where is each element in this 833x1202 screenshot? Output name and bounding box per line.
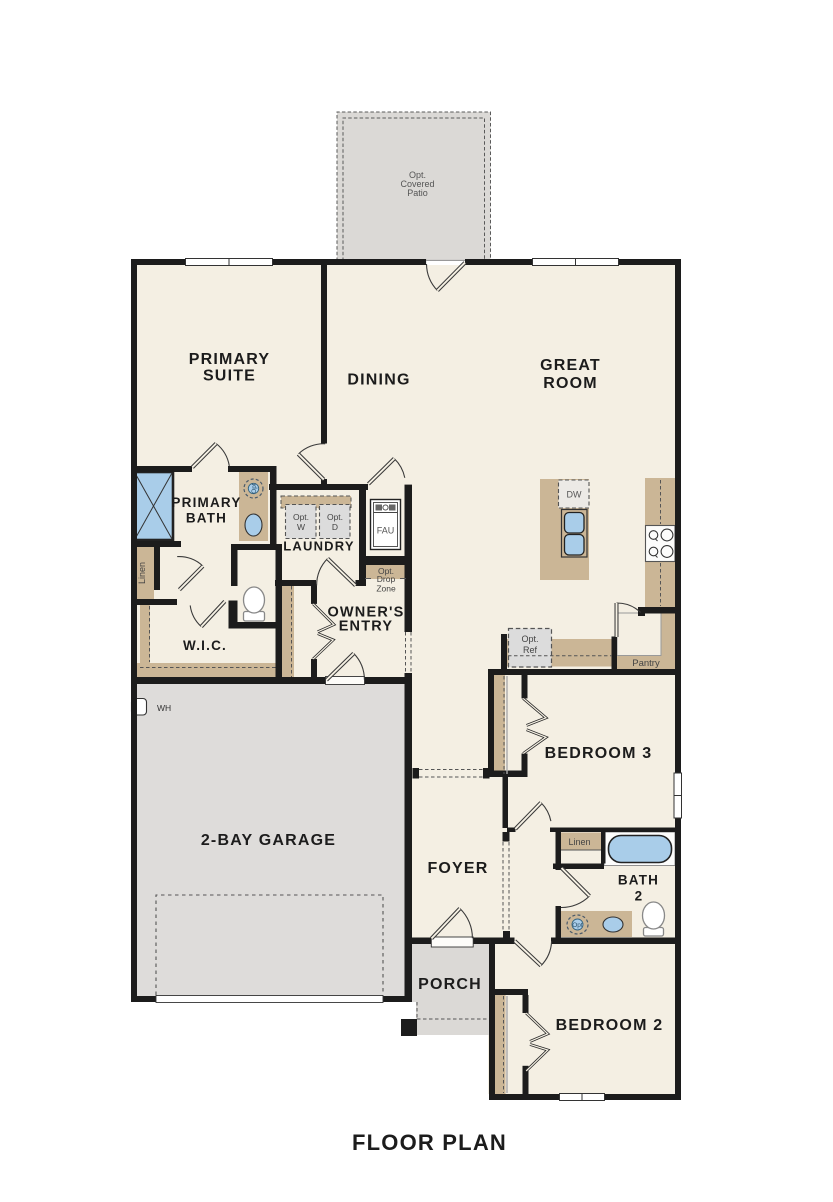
svg-text:PORCH: PORCH xyxy=(418,976,482,993)
svg-text:BEDROOM 3: BEDROOM 3 xyxy=(545,745,653,762)
svg-text:BATH: BATH xyxy=(186,511,227,526)
svg-text:WH: WH xyxy=(157,703,171,713)
svg-text:Zone: Zone xyxy=(376,584,396,594)
svg-text:2: 2 xyxy=(635,889,644,904)
svg-text:DW: DW xyxy=(567,490,582,500)
svg-text:ENTRY: ENTRY xyxy=(339,619,394,635)
svg-text:Linen: Linen xyxy=(137,562,147,584)
svg-text:BEDROOM 2: BEDROOM 2 xyxy=(556,1017,664,1034)
svg-text:Ref: Ref xyxy=(523,645,538,655)
svg-text:Patio: Patio xyxy=(407,188,428,198)
svg-text:Opt.: Opt. xyxy=(521,634,538,644)
svg-text:DINING: DINING xyxy=(347,372,410,389)
svg-text:Linen: Linen xyxy=(568,837,590,847)
svg-text:FAU: FAU xyxy=(377,526,395,536)
svg-text:Opt: Opt xyxy=(251,483,258,494)
svg-text:SUITE: SUITE xyxy=(203,368,256,385)
svg-text:Opt.: Opt. xyxy=(327,512,343,522)
svg-text:D: D xyxy=(332,522,338,532)
svg-text:BATH: BATH xyxy=(618,873,659,888)
svg-text:FLOOR PLAN: FLOOR PLAN xyxy=(352,1130,507,1155)
svg-text:2-BAY GARAGE: 2-BAY GARAGE xyxy=(201,832,336,849)
svg-text:Opt.: Opt. xyxy=(293,512,309,522)
svg-text:GREAT: GREAT xyxy=(540,357,601,374)
svg-text:Drop: Drop xyxy=(377,574,396,584)
svg-text:ROOM: ROOM xyxy=(543,375,598,392)
svg-text:PRIMARY: PRIMARY xyxy=(171,495,241,510)
svg-text:W.I.C.: W.I.C. xyxy=(183,638,227,653)
svg-text:PRIMARY: PRIMARY xyxy=(189,351,271,368)
svg-text:W: W xyxy=(297,522,305,532)
svg-text:Pantry: Pantry xyxy=(632,658,660,669)
svg-text:LAUNDRY: LAUNDRY xyxy=(283,539,354,554)
svg-text:Opt: Opt xyxy=(572,922,583,929)
svg-text:FOYER: FOYER xyxy=(427,860,488,877)
